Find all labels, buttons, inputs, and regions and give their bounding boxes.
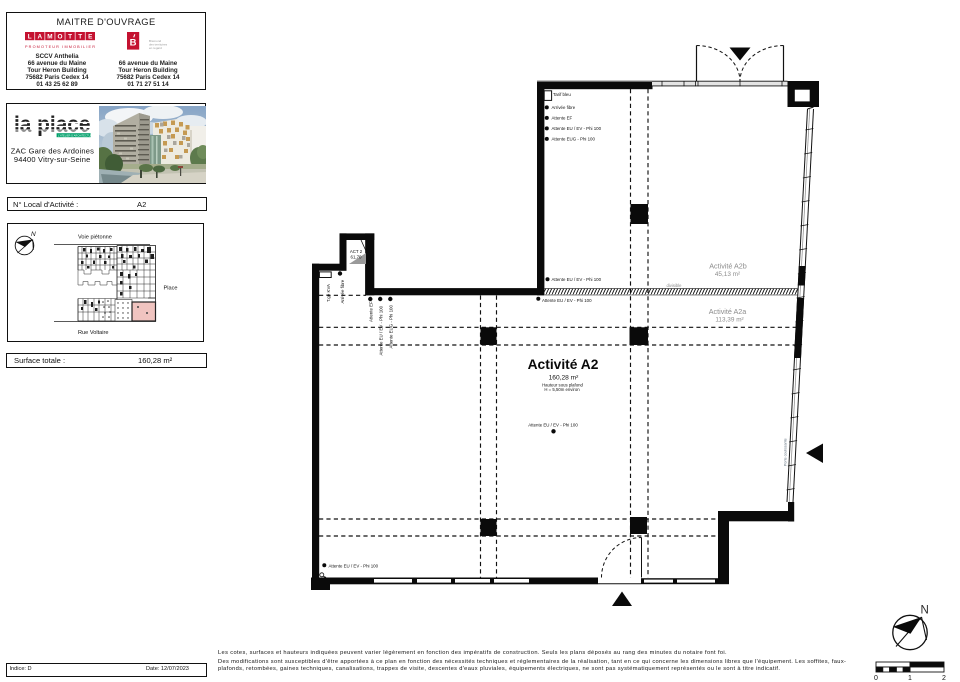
svg-text:divisible: divisible [667,283,683,288]
svg-text:45,13 m²: 45,13 m² [715,271,740,278]
svg-text:Attente EF: Attente EF [552,116,573,121]
svg-text:T.gé KVA: T.gé KVA [326,284,331,302]
svg-text:Arrivée fibre: Arrivée fibre [552,105,576,110]
svg-text:H = 5,50m environ: H = 5,50m environ [544,387,580,392]
svg-text:Tarif bleu: Tarif bleu [553,92,571,97]
svg-text:Attente EU / EV - Phi 100: Attente EU / EV - Phi 100 [552,126,602,131]
svg-text:2: 2 [942,675,946,682]
svg-text:1: 1 [908,675,912,682]
svg-text:Arrivée fibre: Arrivée fibre [340,279,345,303]
svg-text:0: 0 [874,675,878,682]
svg-text:Attente EU / EV - Phi 100: Attente EU / EV - Phi 100 [542,298,592,303]
svg-text:Attente EU / EV - Phi 100: Attente EU / EV - Phi 100 [329,563,379,568]
svg-text:Attente EUG - Phi 100: Attente EUG - Phi 100 [389,305,394,349]
svg-text:Activité A2: Activité A2 [528,357,599,372]
svg-text:N: N [921,605,929,617]
svg-text:Activité A2a: Activité A2a [709,307,747,316]
svg-text:160,28 m²: 160,28 m² [549,375,579,382]
svg-text:Attente EU / EV - Phi 100: Attente EU / EV - Phi 100 [378,305,383,355]
svg-text:ACT 2: ACT 2 [350,249,363,254]
svg-text:Activité A2b: Activité A2b [709,261,747,270]
svg-text:Attente EU / EV - Phi 100: Attente EU / EV - Phi 100 [528,423,578,428]
svg-text:113,39 m²: 113,39 m² [715,317,743,324]
svg-text:Attente EUG - Phi 100: Attente EUG - Phi 100 [552,137,596,142]
svg-text:Attente EF: Attente EF [369,301,374,322]
svg-text:Attente EU / EV - Phi 100: Attente EU / EV - Phi 100 [552,277,602,282]
svg-text:Porte coulissante: Porte coulissante [784,438,788,466]
svg-text:61,70: 61,70 [351,255,363,260]
